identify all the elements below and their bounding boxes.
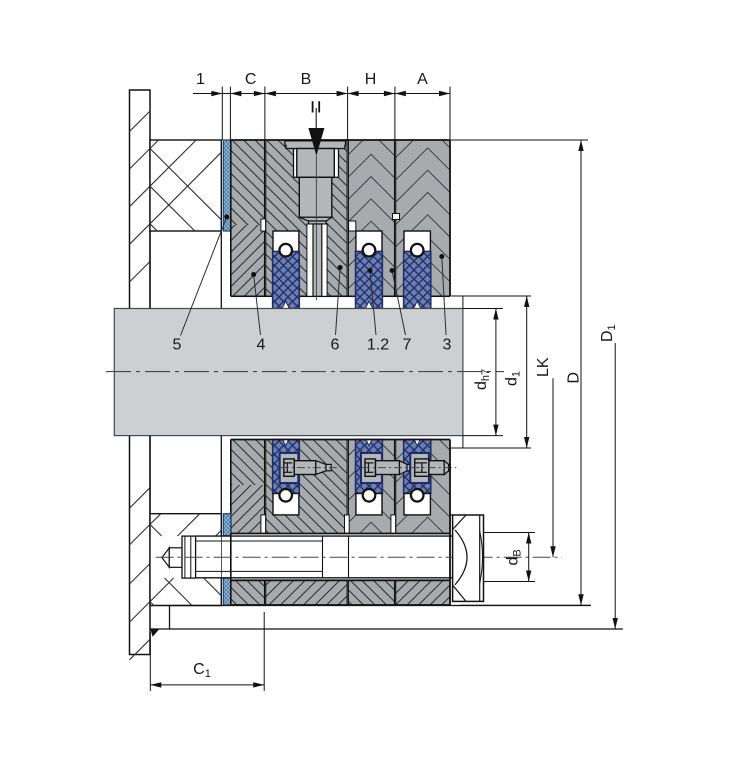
svg-text:D: D — [566, 372, 583, 384]
svg-text:4: 4 — [257, 337, 266, 354]
svg-text:A: A — [417, 71, 428, 88]
svg-text:C: C — [245, 71, 257, 88]
svg-text:1: 1 — [196, 71, 205, 88]
svg-text:3: 3 — [443, 337, 452, 354]
svg-text:B: B — [301, 71, 312, 88]
svg-text:5: 5 — [173, 337, 182, 354]
svg-text:H: H — [365, 71, 377, 88]
svg-text:7: 7 — [403, 337, 412, 354]
svg-text:LK: LK — [535, 357, 552, 377]
svg-text:1.2: 1.2 — [367, 337, 389, 354]
svg-text:6: 6 — [331, 337, 340, 354]
